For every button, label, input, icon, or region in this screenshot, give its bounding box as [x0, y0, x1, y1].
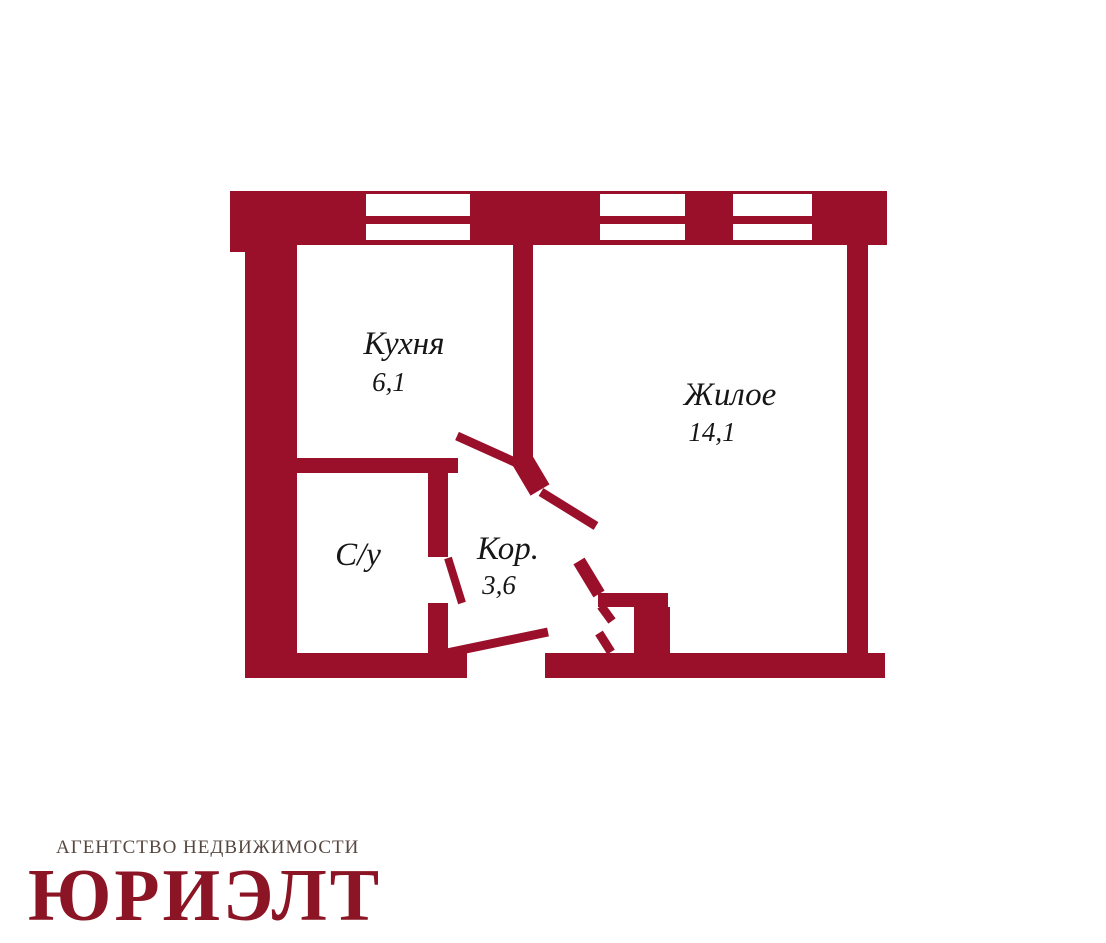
wall-kitchen-living-divider: [513, 245, 533, 462]
door-tick-lower: [599, 633, 611, 652]
wall-left-outer: [245, 245, 297, 678]
wall-bathroom-top: [297, 458, 458, 473]
walls: [230, 191, 887, 678]
door-leaf-bathroom: [448, 558, 462, 603]
door-leaf-front: [437, 632, 548, 655]
wall-bottom-right-segment: [545, 653, 885, 678]
door-leaf-living: [541, 492, 596, 526]
window-living-2-bottom-pane: [733, 224, 812, 240]
window-kitchen-top-pane: [366, 194, 470, 216]
corridor-area: 3,6: [481, 570, 516, 600]
door-leaf-kitchen: [457, 436, 519, 464]
agency-name: ЮРИЭЛТ: [28, 855, 382, 937]
window-living-2-top-pane: [733, 194, 812, 216]
bathroom-label: С/у: [335, 537, 381, 573]
living-label: Жилое: [683, 377, 777, 413]
window-kitchen-bottom-pane: [366, 224, 470, 240]
wall-right-outer: [847, 245, 868, 653]
window-living-1-top-pane: [600, 194, 685, 216]
wall-entry-partition-vertical: [634, 607, 670, 653]
agency-logo: АГЕНТСТВО НЕДВИЖИМОСТИ ЮРИЭЛТ: [28, 837, 382, 937]
wall-divider-angled-foot: [521, 458, 540, 490]
kitchen-area: 6,1: [372, 367, 406, 397]
living-area: 14,1: [688, 417, 735, 447]
wall-bathroom-right-lower: [428, 603, 448, 653]
wall-bathroom-right-upper: [428, 473, 448, 557]
floor-plan-image: Кухня 6,1 Жилое 14,1 С/у Кор. 3,6 АГЕНТС…: [0, 0, 1106, 943]
door-tick-upper: [601, 606, 612, 621]
kitchen-label: Кухня: [362, 326, 444, 362]
door-leaf-entry-inner: [579, 561, 599, 594]
wall-entry-partition-horizontal: [598, 593, 668, 607]
window-living-1-bottom-pane: [600, 224, 685, 240]
corridor-label: Кор.: [476, 531, 539, 567]
wall-bottom-left-segment: [245, 653, 467, 678]
